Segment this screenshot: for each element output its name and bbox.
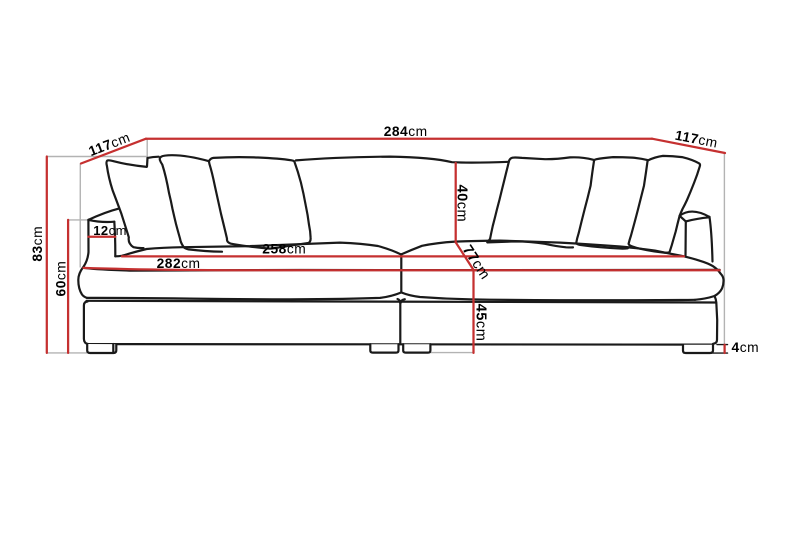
svg-text:12cm: 12cm — [93, 223, 127, 238]
svg-text:258cm: 258cm — [262, 242, 306, 257]
svg-text:83cm: 83cm — [30, 226, 45, 262]
svg-text:40cm: 40cm — [453, 184, 469, 222]
svg-text:284cm: 284cm — [384, 124, 428, 139]
svg-text:4cm: 4cm — [732, 340, 760, 355]
svg-text:282cm: 282cm — [157, 256, 201, 271]
svg-text:45cm: 45cm — [473, 304, 489, 342]
svg-text:60cm: 60cm — [53, 261, 68, 297]
